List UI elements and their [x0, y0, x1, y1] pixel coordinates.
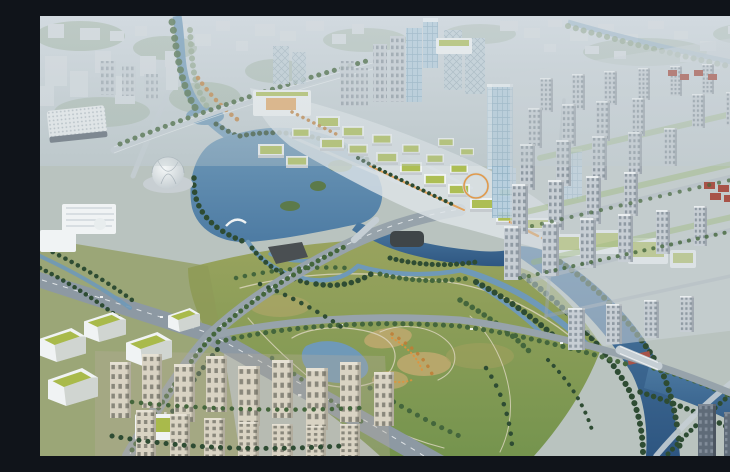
garden-bed [397, 352, 451, 376]
atmosphere-overlay [40, 16, 730, 166]
cream-tower [170, 414, 190, 456]
apartment-tower [694, 206, 707, 246]
cream-tower [340, 424, 360, 456]
dry-meadow [446, 343, 514, 369]
apartment-tower [568, 308, 585, 350]
cream-tower [340, 362, 361, 422]
cream-tower [174, 364, 195, 422]
apartment-tower [644, 300, 659, 338]
commercial-block [470, 198, 494, 212]
cream-tower [204, 418, 225, 456]
lake-island [280, 201, 300, 211]
apartment-tower [624, 172, 638, 216]
apartment-tower [580, 218, 596, 268]
cream-tower [374, 372, 394, 426]
dark-tower [724, 412, 730, 456]
cream-tower [238, 366, 260, 426]
apartment-tower [542, 222, 559, 276]
apartment-tower [606, 304, 622, 344]
cream-tower [306, 368, 328, 430]
apartment-tower [680, 296, 694, 332]
aerial-render [40, 16, 730, 456]
cream-tower [206, 356, 227, 412]
cream-tower [272, 424, 293, 456]
dark-tower [698, 404, 716, 456]
cream-tower [238, 422, 259, 456]
cream-tower [136, 410, 156, 456]
commercial-block [424, 174, 446, 187]
exhibition-hall [40, 230, 76, 252]
dark-roof-pavilion [390, 231, 424, 247]
cream-tower [306, 426, 326, 456]
cream-tower [142, 354, 162, 408]
small-dome [94, 218, 106, 230]
cream-tower [110, 362, 131, 418]
render-svg [40, 16, 730, 456]
lake-island [310, 181, 326, 191]
apartment-tower [504, 226, 521, 280]
apartment-tower [586, 176, 601, 224]
